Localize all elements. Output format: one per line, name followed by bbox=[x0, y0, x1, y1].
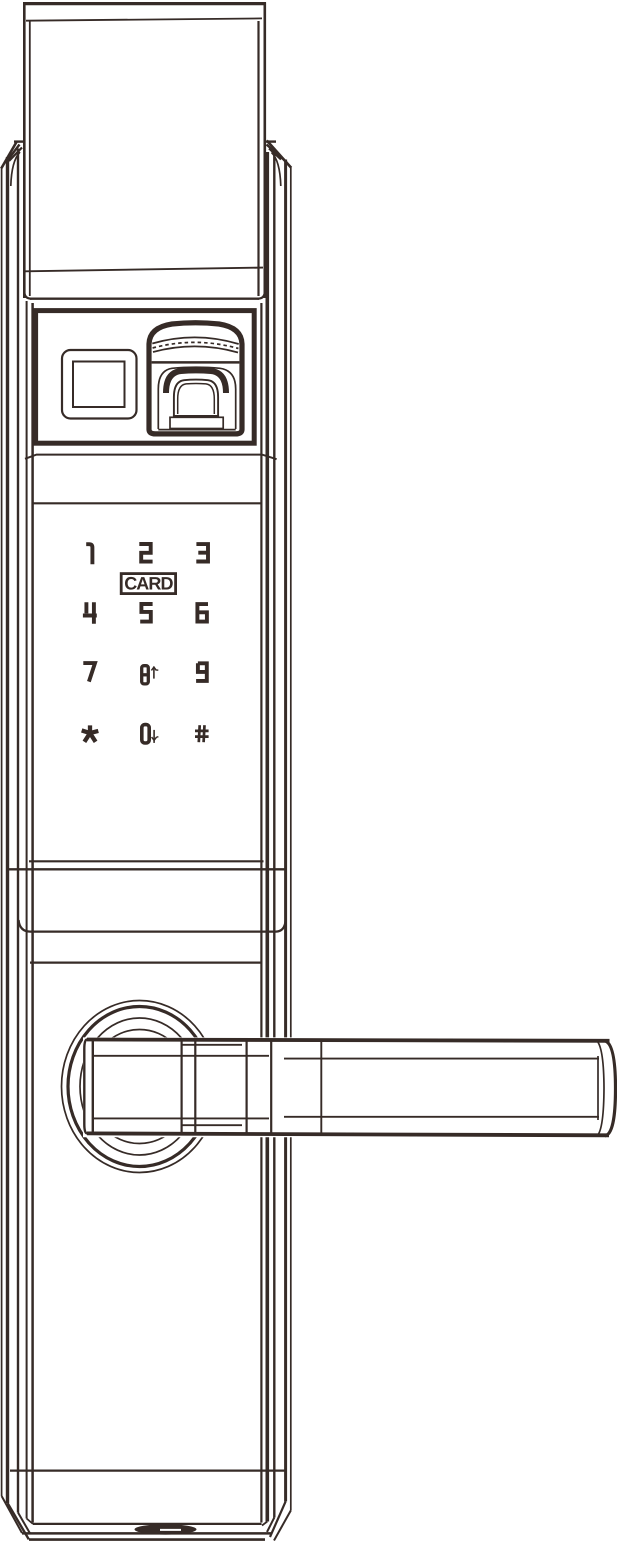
svg-text:CARD: CARD bbox=[124, 574, 173, 594]
